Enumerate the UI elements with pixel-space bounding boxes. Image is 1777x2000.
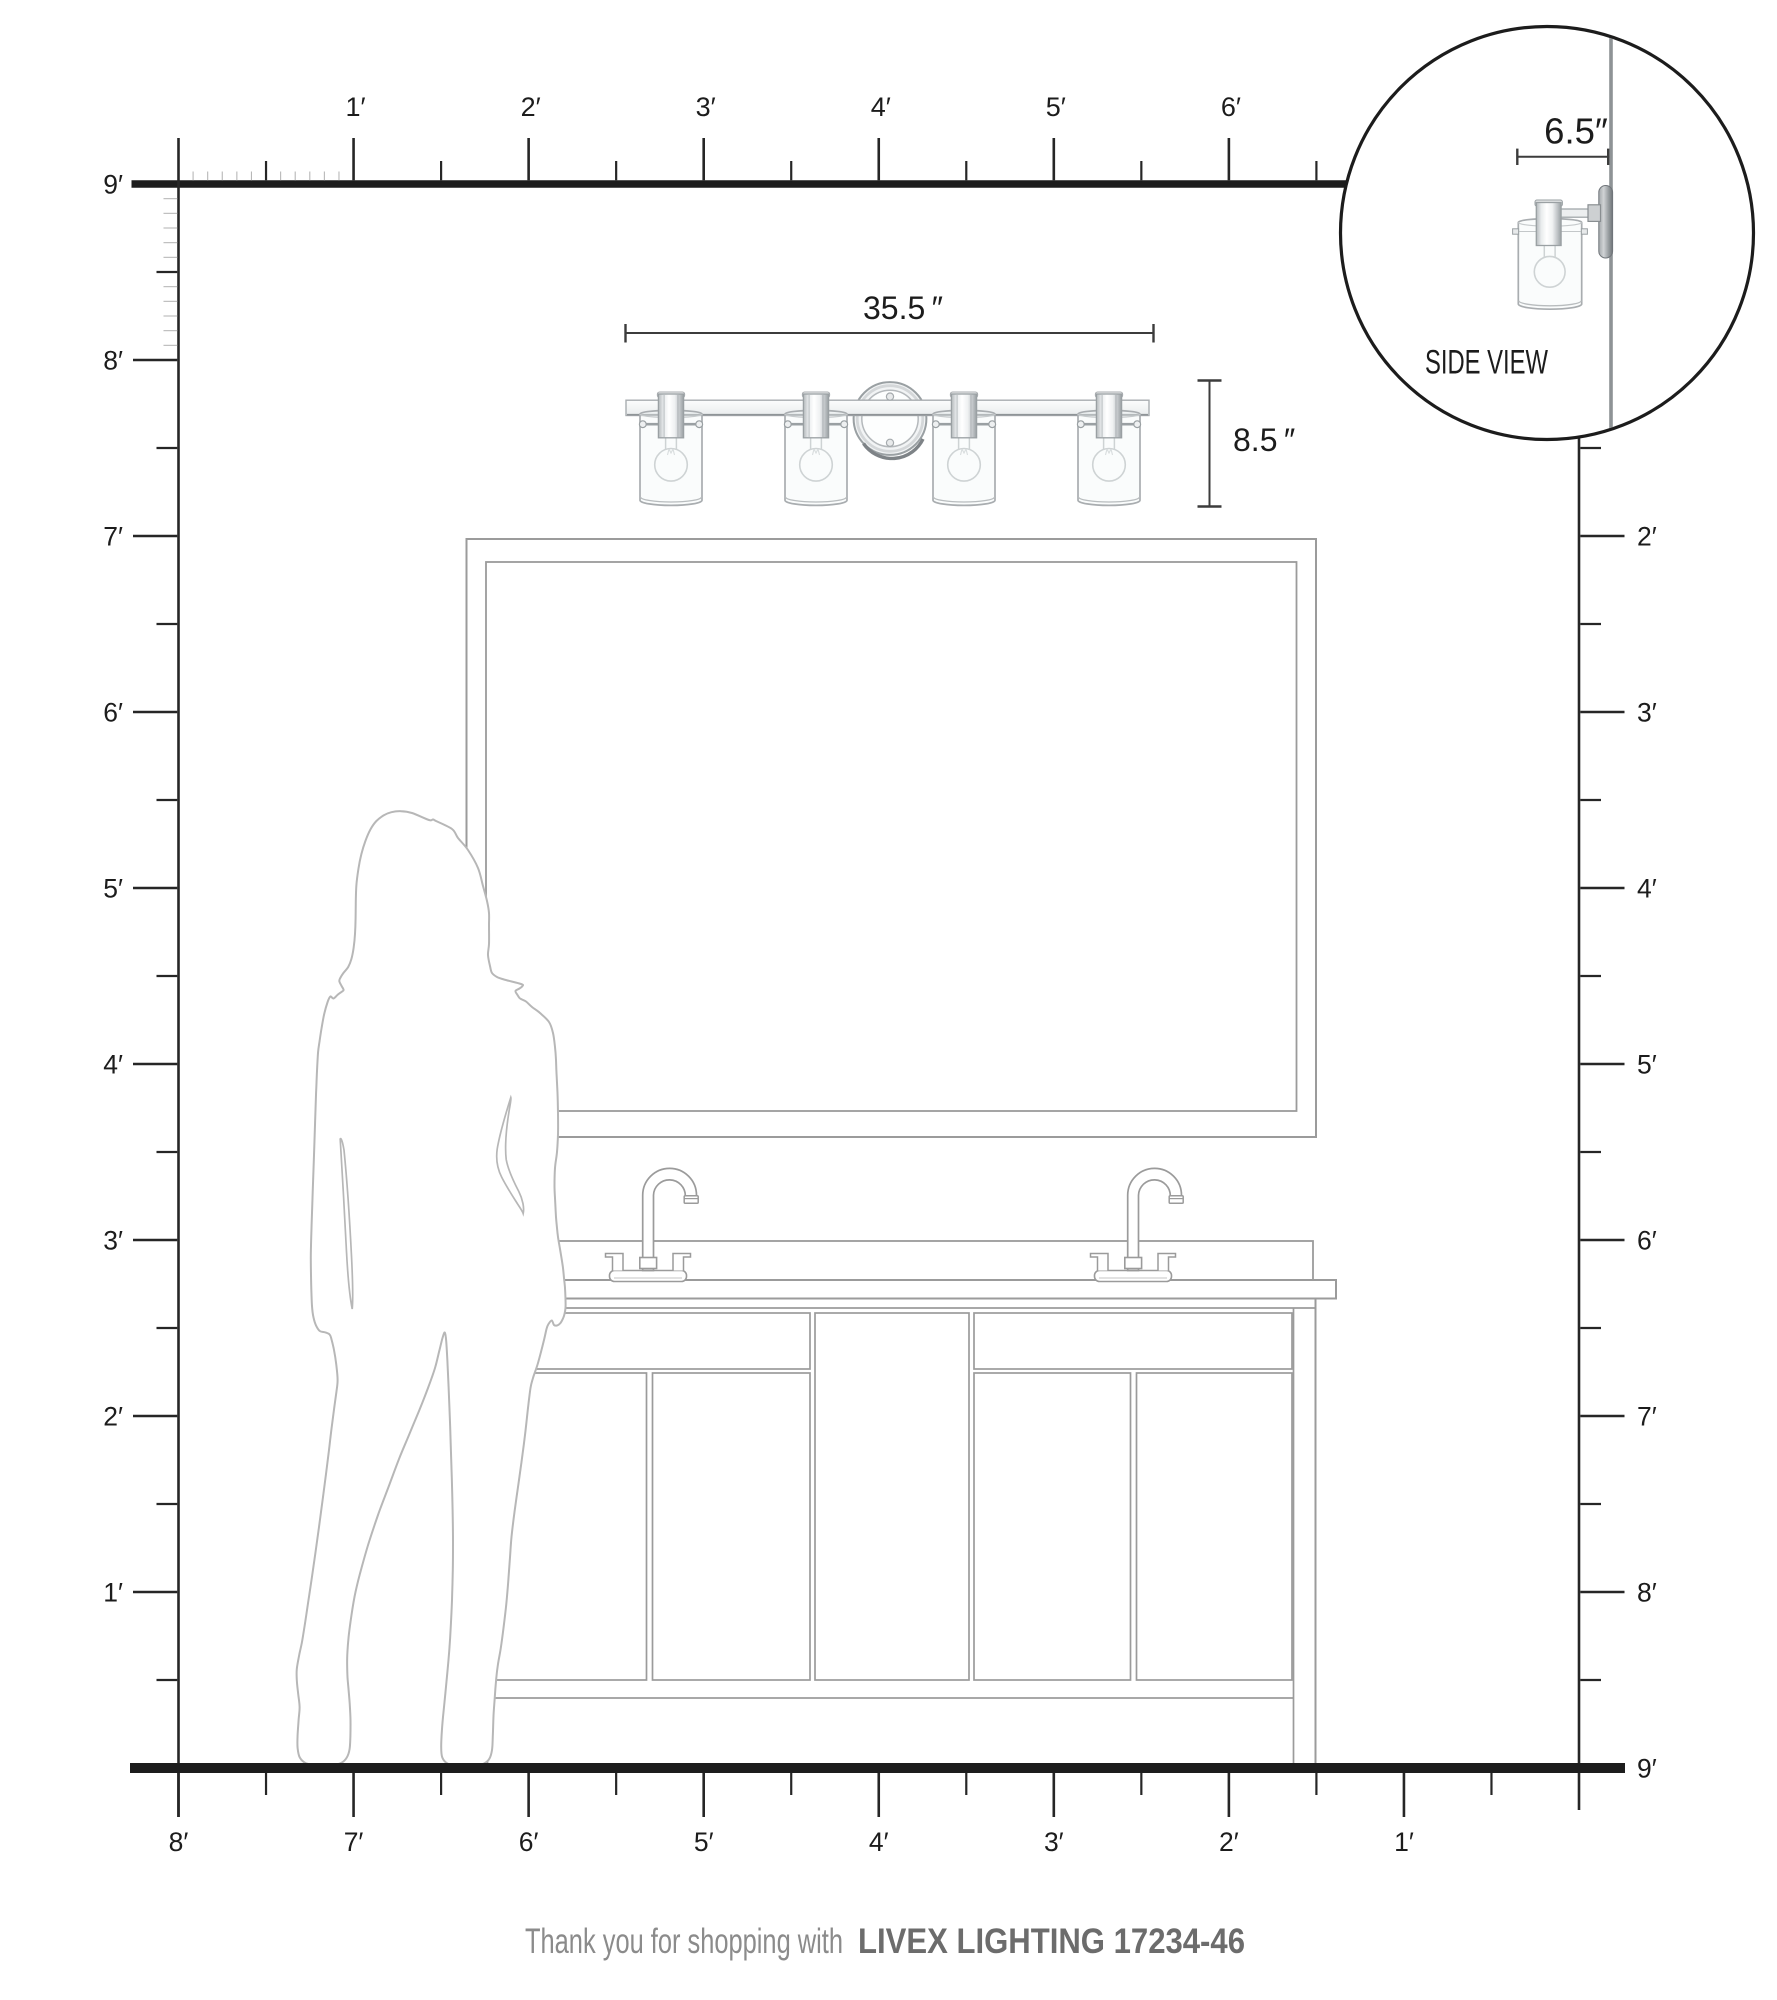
- svg-text:6′: 6′: [1637, 1226, 1657, 1256]
- svg-text:8.5 ″: 8.5 ″: [1233, 422, 1295, 458]
- svg-text:4′: 4′: [1637, 874, 1657, 904]
- svg-text:6′: 6′: [519, 1827, 539, 1857]
- svg-text:1′: 1′: [103, 1578, 123, 1608]
- svg-text:5′: 5′: [694, 1827, 714, 1857]
- svg-text:2′: 2′: [521, 92, 541, 122]
- svg-text:5′: 5′: [1637, 1050, 1657, 1080]
- svg-text:5′: 5′: [103, 874, 123, 904]
- svg-text:6′: 6′: [103, 698, 123, 728]
- svg-text:4′: 4′: [869, 1827, 889, 1857]
- svg-text:2′: 2′: [1219, 1827, 1239, 1857]
- svg-text:8′: 8′: [103, 346, 123, 376]
- svg-text:LIVEX LIGHTING 17234-46: LIVEX LIGHTING 17234-46: [858, 1922, 1245, 1961]
- svg-text:1′: 1′: [1394, 1827, 1414, 1857]
- svg-text:3′: 3′: [103, 1226, 123, 1256]
- svg-text:8′: 8′: [1637, 1578, 1657, 1608]
- svg-text:6.5″: 6.5″: [1544, 110, 1608, 151]
- svg-text:4′: 4′: [103, 1050, 123, 1080]
- svg-text:1′: 1′: [346, 92, 366, 122]
- svg-text:3′: 3′: [1637, 698, 1657, 728]
- svg-text:7′: 7′: [1637, 1402, 1657, 1432]
- svg-text:9′: 9′: [103, 170, 123, 200]
- svg-text:Thank you for shopping with: Thank you for shopping with: [525, 1922, 843, 1961]
- svg-text:9′: 9′: [1637, 1754, 1657, 1784]
- svg-text:3′: 3′: [1044, 1827, 1064, 1857]
- svg-text:7′: 7′: [344, 1827, 364, 1857]
- svg-text:SIDE VIEW: SIDE VIEW: [1425, 344, 1548, 382]
- svg-text:2′: 2′: [1637, 522, 1657, 552]
- svg-text:6′: 6′: [1221, 92, 1241, 122]
- svg-text:7′: 7′: [103, 522, 123, 552]
- svg-text:35.5 ″: 35.5 ″: [863, 290, 943, 326]
- svg-text:5′: 5′: [1046, 92, 1066, 122]
- svg-text:4′: 4′: [871, 92, 891, 122]
- svg-text:3′: 3′: [696, 92, 716, 122]
- svg-text:8′: 8′: [169, 1827, 189, 1857]
- svg-text:2′: 2′: [103, 1402, 123, 1432]
